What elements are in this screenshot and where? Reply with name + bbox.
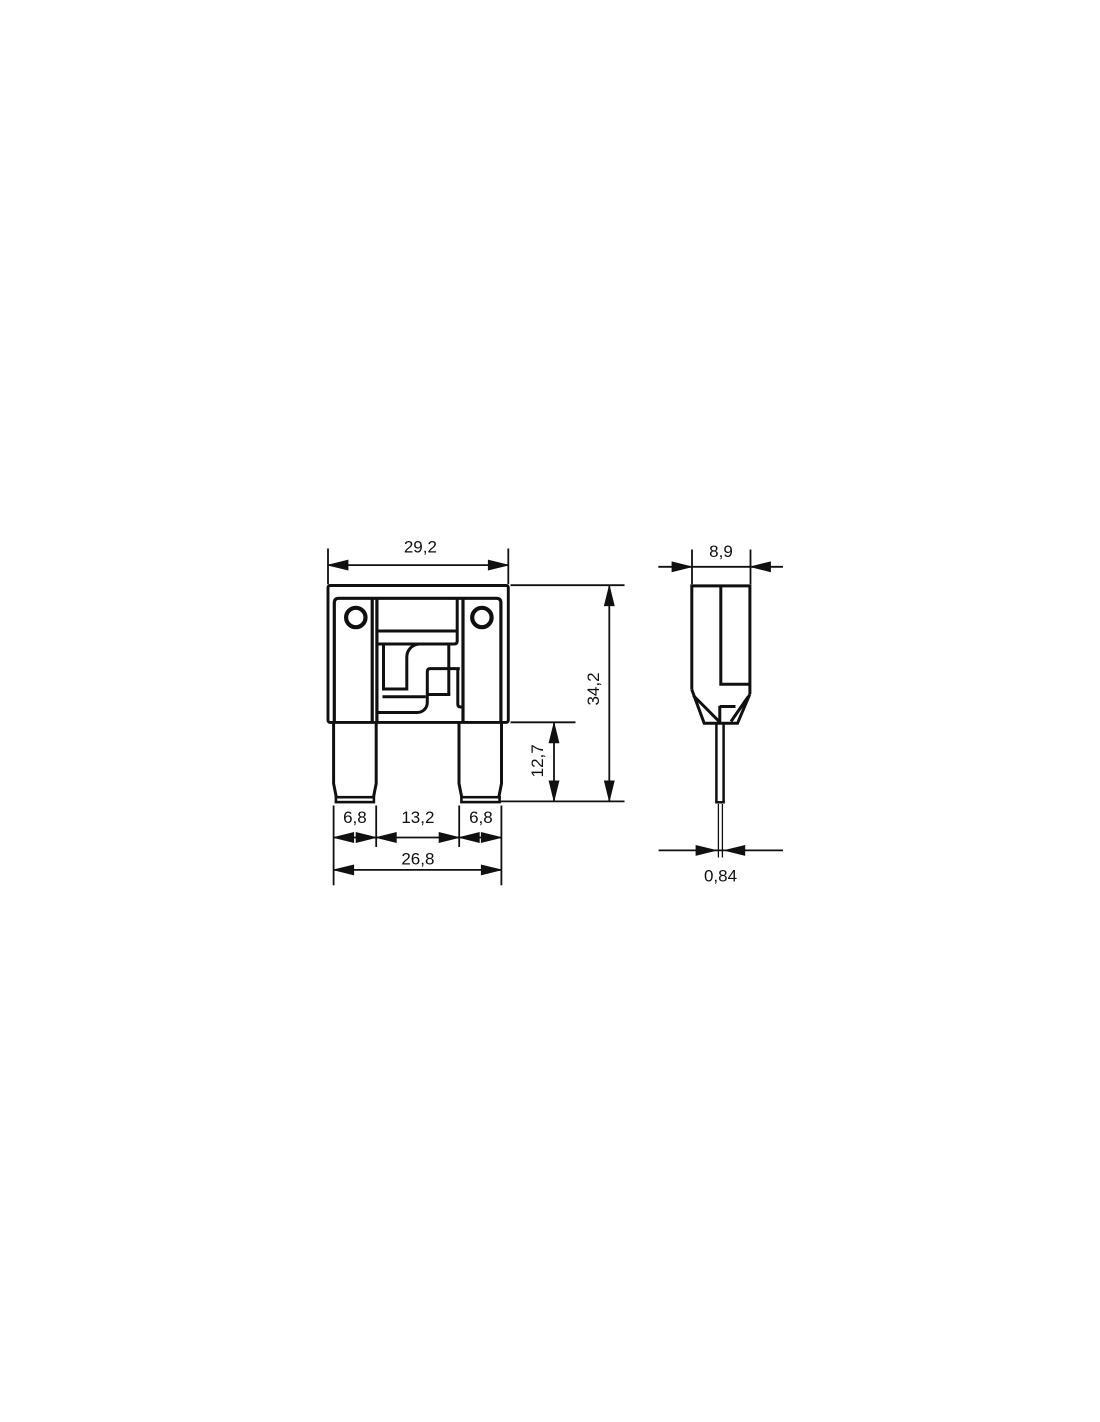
svg-text:13,2: 13,2 [401, 808, 434, 827]
svg-text:8,9: 8,9 [709, 542, 733, 561]
svg-text:6,8: 6,8 [343, 808, 367, 827]
svg-text:12,7: 12,7 [528, 744, 547, 777]
svg-text:29,2: 29,2 [404, 537, 437, 556]
svg-text:0,84: 0,84 [704, 866, 737, 885]
svg-text:6,8: 6,8 [469, 808, 493, 827]
svg-text:26,8: 26,8 [401, 849, 434, 868]
svg-text:34,2: 34,2 [584, 672, 603, 705]
